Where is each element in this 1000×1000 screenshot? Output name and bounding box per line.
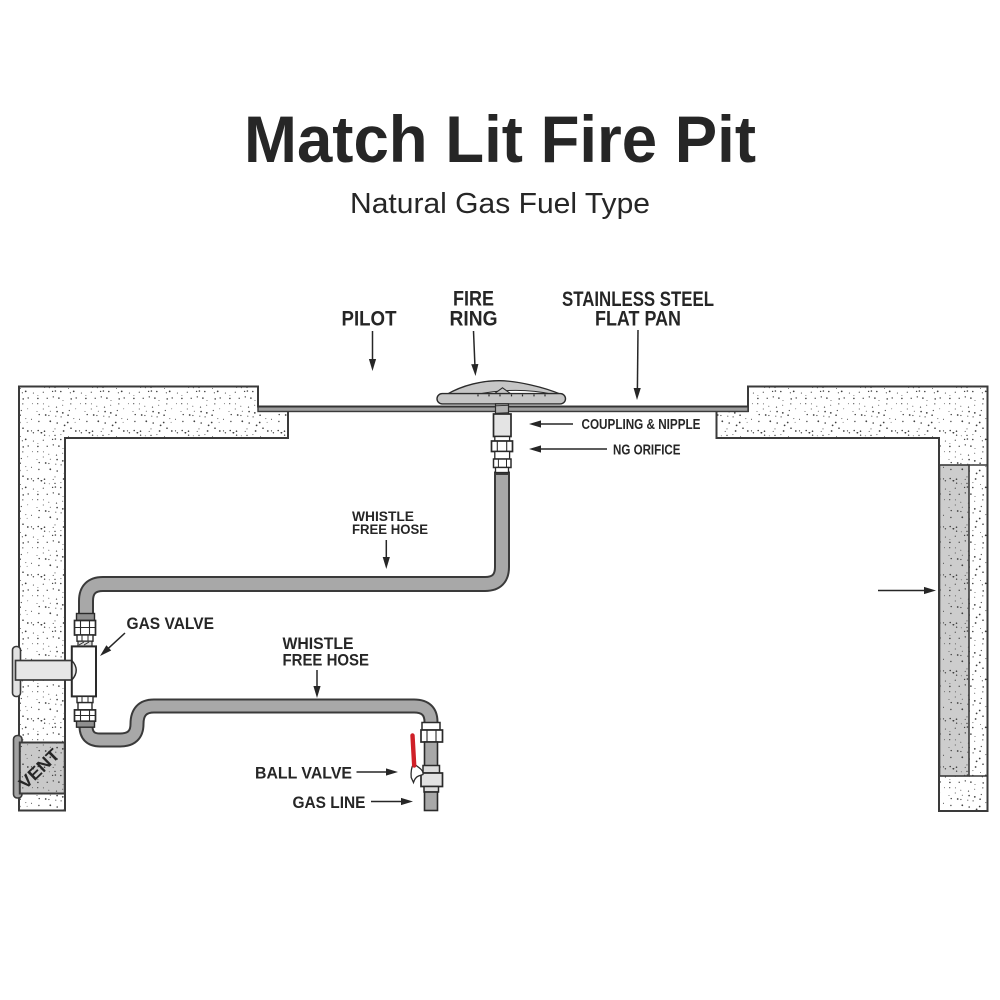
svg-text:COUPLING & NIPPLE: COUPLING & NIPPLE <box>582 417 701 433</box>
svg-text:Natural Gas Fuel Type: Natural Gas Fuel Type <box>350 188 650 220</box>
svg-text:RING: RING <box>450 308 498 331</box>
svg-text:FREE HOSE: FREE HOSE <box>352 522 428 538</box>
svg-text:BALL VALVE: BALL VALVE <box>255 765 352 783</box>
svg-text:GAS LINE: GAS LINE <box>293 794 366 812</box>
svg-text:Match Lit Fire Pit: Match Lit Fire Pit <box>244 102 756 176</box>
svg-text:FREE HOSE: FREE HOSE <box>283 650 370 669</box>
svg-text:NG ORIFICE: NG ORIFICE <box>613 442 681 458</box>
svg-text:PILOT: PILOT <box>342 308 397 331</box>
svg-text:FLAT PAN: FLAT PAN <box>595 308 681 331</box>
svg-text:GAS VALVE: GAS VALVE <box>127 614 215 633</box>
